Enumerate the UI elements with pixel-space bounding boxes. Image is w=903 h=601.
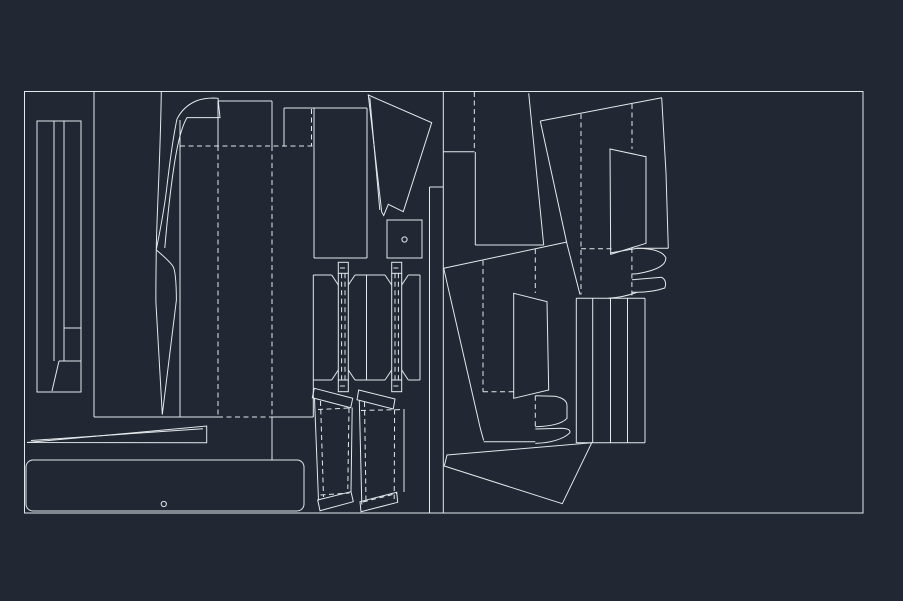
piece-strap-right-line (363, 494, 397, 503)
piece-rounded-plate-circle (161, 501, 166, 506)
piece-strap-left-line (348, 408, 349, 489)
piece-bottom-triangle-polygon (444, 443, 591, 504)
piece-large-lower-panel-polyline (444, 268, 484, 440)
piece-tilted-quad[interactable] (368, 95, 431, 216)
piece-wedge[interactable] (27, 426, 207, 443)
piece-square-eyelet-circle (402, 237, 407, 242)
piece-comb-fingers[interactable] (608, 248, 666, 298)
piece-strap-right-line (361, 410, 403, 411)
piece-hooks[interactable] (535, 396, 570, 444)
piece-large-lower-panel[interactable] (444, 242, 567, 442)
piece-bolt-panel-line (385, 275, 392, 285)
piece-big-tilted-rect-line (540, 98, 661, 121)
piece-strap-right-line (365, 402, 367, 502)
piece-inner-quad-polygon (514, 293, 549, 398)
piece-inner-quad[interactable] (514, 293, 549, 398)
piece-big-tilted-rect-line (540, 121, 567, 244)
piece-tall-panel-line (52, 361, 59, 391)
piece-square-eyelet[interactable] (387, 220, 422, 258)
piece-big-tilted-rect[interactable] (540, 98, 668, 298)
piece-strap-right-polygon (357, 390, 395, 409)
piece-strap-right-polygon (360, 492, 398, 511)
piece-comb-fingers-path (632, 277, 666, 292)
piece-strap-left-line (321, 401, 324, 497)
piece-rounded-plate-rect (26, 460, 304, 511)
piece-wedge-line (31, 429, 203, 441)
piece-bolt-panel-line (332, 370, 339, 380)
piece-curved-sliver-path (156, 250, 176, 415)
piece-curved-sliver-path (156, 92, 162, 415)
piece-bottom-triangle[interactable] (444, 443, 591, 504)
piece-top-cell[interactable] (443, 92, 474, 152)
piece-bolt-right[interactable] (392, 262, 402, 391)
piece-divider-bar[interactable] (430, 92, 444, 513)
piece-strap-left-line (318, 408, 350, 410)
piece-tall-panel[interactable] (37, 121, 81, 392)
piece-large-lower-panel-line (444, 242, 567, 268)
piece-bolt-panel[interactable] (313, 275, 420, 380)
piece-right-quad-1-line (529, 93, 544, 245)
drawing-canvas[interactable] (0, 0, 903, 601)
piece-big-tilted-rect-polyline (662, 98, 669, 249)
piece-strap-left-line (315, 399, 319, 501)
cad-viewport (0, 0, 903, 601)
piece-tilted-quad-line (370, 98, 380, 211)
piece-mid-rect-group[interactable] (94, 101, 367, 460)
piece-bolt-panel-line (402, 370, 409, 380)
piece-tilted-quad-polygon (368, 95, 431, 216)
piece-strap-left[interactable] (312, 388, 353, 510)
piece-strap-left-line (351, 408, 352, 492)
piece-curved-sliver-path (165, 98, 220, 248)
piece-bolt-panel-line (332, 275, 339, 285)
piece-square-eyelet-rect (387, 220, 422, 258)
piece-hooks-path (535, 396, 567, 427)
piece-bolt-panel-line (348, 370, 355, 380)
piece-tall-panel-rect (37, 121, 81, 392)
piece-small-tilted-rect-polygon (610, 149, 646, 254)
piece-curved-sliver[interactable] (156, 92, 220, 415)
piece-bolt-panel-line (385, 370, 392, 380)
piece-strap-right[interactable] (357, 390, 404, 512)
piece-strap-right-line (359, 400, 362, 505)
piece-striped-box[interactable] (576, 298, 645, 443)
piece-right-quad-1[interactable] (475, 93, 543, 245)
piece-small-tilted-rect[interactable] (610, 149, 646, 254)
piece-rounded-plate[interactable] (26, 460, 304, 511)
piece-comb-fingers-path (608, 292, 637, 298)
piece-hooks-path (535, 428, 570, 443)
piece-bolt-panel-line (402, 275, 409, 285)
piece-big-tilted-rect-line (567, 244, 580, 295)
piece-bolt-left[interactable] (338, 262, 348, 391)
piece-bolt-panel-line (348, 275, 355, 285)
